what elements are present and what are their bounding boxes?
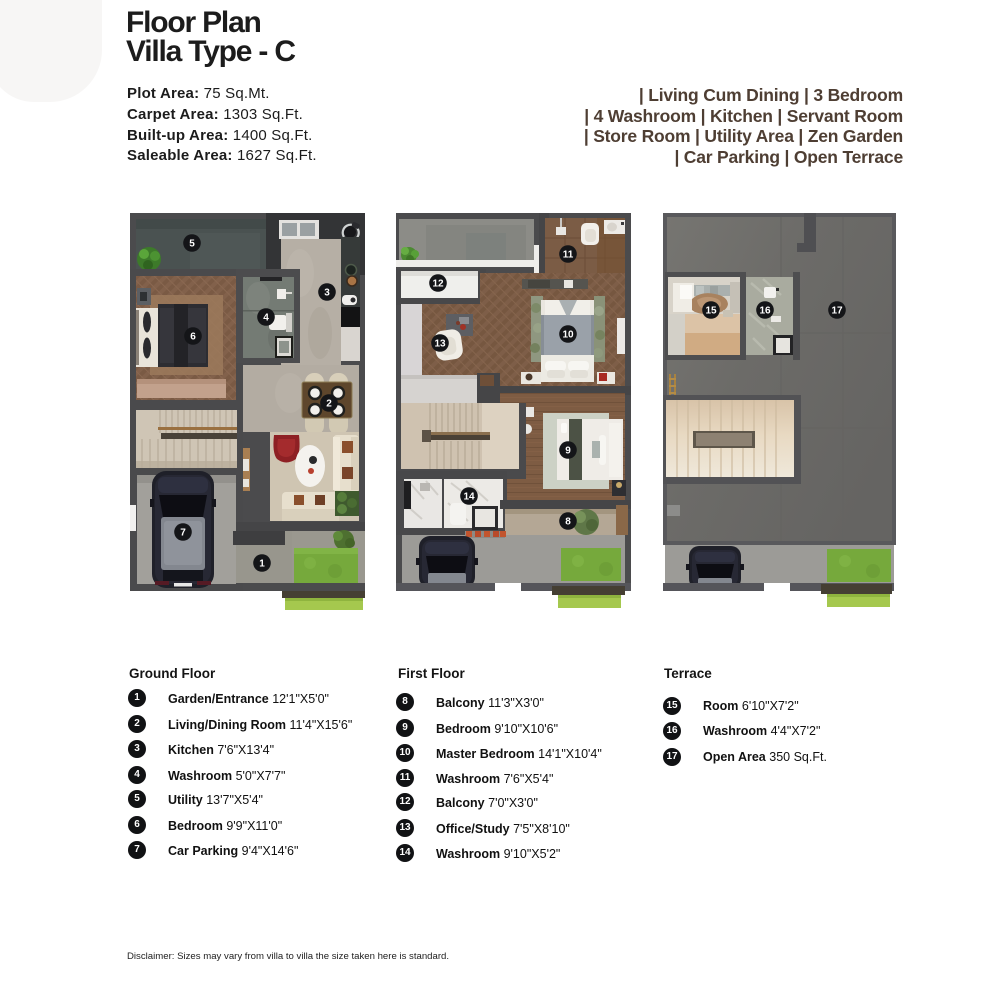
svg-text:7: 7 [180, 527, 186, 538]
svg-text:2: 2 [326, 398, 332, 409]
svg-text:16: 16 [759, 305, 771, 316]
svg-text:4: 4 [263, 312, 269, 323]
svg-text:11: 11 [563, 249, 574, 260]
svg-text:3: 3 [324, 287, 330, 298]
svg-text:5: 5 [189, 238, 195, 249]
svg-text:17: 17 [831, 305, 843, 316]
svg-text:15: 15 [705, 305, 717, 316]
svg-text:14: 14 [463, 491, 475, 502]
svg-text:10: 10 [562, 329, 574, 340]
svg-text:13: 13 [434, 338, 446, 349]
svg-text:9: 9 [565, 445, 571, 456]
svg-text:12: 12 [432, 278, 444, 289]
svg-text:6: 6 [190, 331, 196, 342]
svg-text:1: 1 [259, 558, 265, 569]
svg-text:8: 8 [565, 516, 571, 527]
